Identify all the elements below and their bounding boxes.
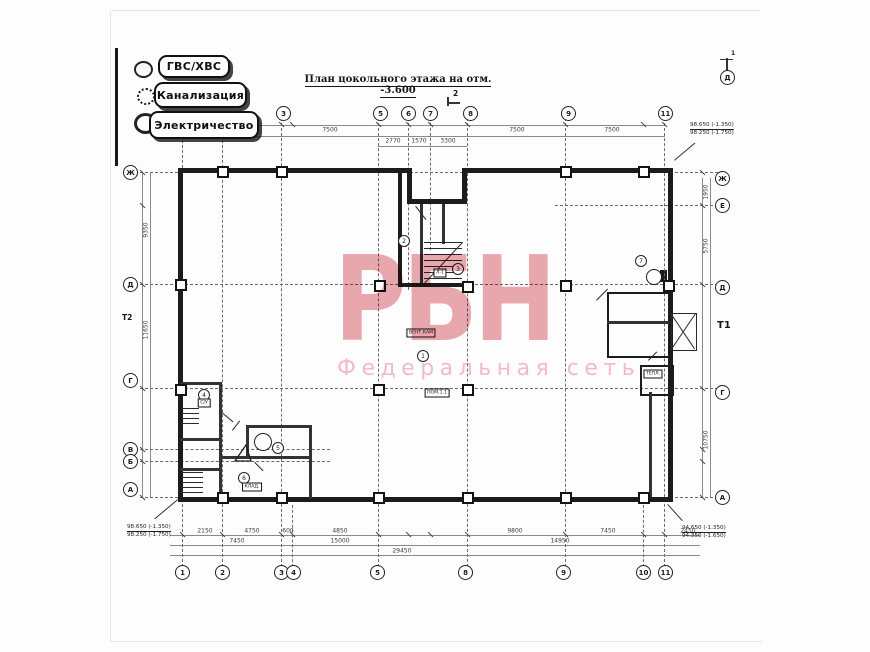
axis-label-bottom: 9: [556, 565, 571, 580]
room-tag: С/У: [198, 399, 211, 408]
axis-label-bottom: 2: [215, 565, 230, 580]
column-marker: [560, 166, 572, 178]
legend-dot-sewer: [137, 88, 155, 105]
legend-button-electricity[interactable]: Электричество: [149, 111, 259, 139]
column-marker: [276, 492, 288, 504]
dimension-label: 14950: [550, 538, 569, 545]
dimension-label: 5750: [703, 238, 710, 253]
room-right-divider: [607, 321, 669, 324]
column-marker: [276, 166, 288, 178]
axis-label-bottom: 5: [370, 565, 385, 580]
dimension-label: 15000: [330, 538, 349, 545]
stair-tread-small: [181, 418, 199, 419]
section-mark-left: Т2: [122, 313, 132, 322]
shaft-circle: [646, 269, 662, 285]
room-tag: КЛАД.: [242, 483, 262, 492]
room-right-block: [607, 292, 673, 358]
section-mark-ne-num: 1: [731, 50, 735, 57]
axis-label-right: Ж: [715, 171, 730, 186]
column-marker: [175, 384, 187, 396]
wall-bl-mid1: [180, 438, 222, 441]
room-number-marker: 3: [452, 263, 464, 275]
elevation-bottom-left: 98.650 (-1.350) 98.250 (-1.750): [127, 524, 171, 538]
column-marker: [374, 280, 386, 292]
column-marker: [175, 279, 187, 291]
legend-dot-gvs: [134, 61, 153, 78]
legend-button-sewerage[interactable]: Канализация: [154, 82, 247, 108]
grid-line-vertical: [430, 108, 431, 250]
axis-label-left: Г: [123, 373, 138, 388]
room-number-marker: 7: [635, 255, 647, 267]
axis-label-top: 8: [463, 106, 478, 121]
wall-bottom: [178, 497, 673, 502]
stair-tread-corner: [181, 492, 203, 493]
stair-tread: [424, 242, 462, 243]
grid-line-vertical: [222, 120, 223, 572]
axis-label-top: 9: [561, 106, 576, 121]
dimension-label: 7450: [229, 538, 244, 545]
stair-tread-corner: [181, 472, 203, 473]
wall-wash-east: [309, 425, 312, 499]
dimension-label: 1570: [411, 138, 426, 145]
axis-label-top: 7: [423, 106, 438, 121]
wall-notch-right: [462, 168, 467, 204]
wall-top-left: [178, 168, 412, 173]
column-marker: [217, 166, 229, 178]
column-marker: [373, 384, 385, 396]
dim-line-top-3: [378, 146, 467, 147]
room-number-marker: 5: [272, 442, 284, 454]
dimension-label: 3300: [440, 138, 455, 145]
stair-tread-small: [181, 423, 199, 424]
axis-label-right: Г: [715, 385, 730, 400]
column-marker: [638, 492, 650, 504]
axis-label-bottom: 1: [175, 565, 190, 580]
dimension-label: 7500: [322, 127, 337, 134]
dimension-label: 2150: [197, 528, 212, 535]
axis-label-left: А: [123, 482, 138, 497]
scanned-floor-plan-page: ГВС/ХВС Канализация Электричество План ц…: [0, 0, 870, 652]
dimension-label: 4850: [332, 528, 347, 535]
dimension-label: 2770: [385, 138, 400, 145]
wall-notch-bottom: [407, 199, 467, 204]
axis-label-left: Д: [123, 277, 138, 292]
dimension-label: 10750: [703, 430, 710, 449]
wall-wash-top: [246, 425, 312, 428]
dimension-label: 7500: [604, 127, 619, 134]
axis-label-bottom: 8: [458, 565, 473, 580]
column-marker: [663, 280, 675, 292]
room-tag: Л-1: [433, 269, 446, 278]
column-marker: [560, 280, 572, 292]
section-mark-ne-tick: [720, 59, 733, 60]
elevation-bottom-right: 94.650 (-1.350) 94.350 (-1.650): [682, 525, 726, 539]
legend-label-gvs-hvs: ГВС/ХВС: [167, 60, 222, 73]
drawing-title: План цокольного этажа на отм. -3.600: [288, 74, 508, 96]
column-marker: [373, 492, 385, 504]
axis-label-left: Б: [123, 454, 138, 469]
washbasin: [254, 433, 272, 451]
column-marker: [462, 492, 474, 504]
dimension-label: 9350: [143, 222, 150, 237]
wall-right-corridor: [649, 392, 652, 497]
column-marker: [217, 492, 229, 504]
dimension-label: 4750: [244, 528, 259, 535]
legend-button-gvs-hvs[interactable]: ГВС/ХВС: [158, 55, 230, 78]
room-tag: ТЕПЛ.: [643, 370, 662, 379]
section-mark-top-bar-h: [447, 102, 460, 104]
dim-line-bottom-2: [170, 545, 700, 546]
axis-label-right: Д: [715, 280, 730, 295]
stair-tread-small: [181, 408, 199, 409]
axis-label-bottom: 4: [286, 565, 301, 580]
wall-stair-inner-mid: [442, 204, 445, 244]
axis-label-bottom: 11: [658, 565, 673, 580]
axis-label-top: 5: [373, 106, 388, 121]
column-marker: [462, 281, 474, 293]
axis-label-bottom: 10: [636, 565, 651, 580]
grid-line-horizontal: [555, 205, 718, 206]
dimension-label: 29450: [392, 548, 411, 555]
dim-line-bottom-3: [170, 555, 700, 556]
grid-line-vertical: [292, 505, 293, 572]
dimension-label: 600: [282, 528, 293, 535]
axis-label-ne: Д: [720, 70, 735, 85]
legend-label-sewerage: Канализация: [157, 89, 244, 102]
stair-tread-corner: [181, 477, 203, 478]
stair-tread: [424, 254, 462, 255]
dim-line-bottom-1: [170, 535, 700, 536]
stair-tread-corner: [181, 487, 203, 488]
axis-label-top: 11: [658, 106, 673, 121]
shower-tray: [234, 444, 252, 462]
wall-stair-south: [398, 283, 470, 287]
stair-tread-small: [181, 413, 199, 414]
axis-label-top: 6: [401, 106, 416, 121]
legend-label-electricity: Электричество: [154, 119, 253, 132]
room-number-marker: 2: [398, 235, 410, 247]
elevation-top-right: 98.650 (-1.350) 98.250 (-1.750): [690, 122, 734, 136]
column-marker: [638, 166, 650, 178]
section-mark-right: Т1: [717, 320, 731, 331]
wall-left: [178, 168, 183, 502]
axis-label-left: Ж: [123, 165, 138, 180]
room-tag: ВЕНТ.КАМ: [406, 329, 435, 338]
dimension-label: 7500: [509, 127, 524, 134]
dimension-label: 11650: [143, 320, 150, 339]
grid-line-vertical: [643, 505, 644, 572]
dimension-label: 1950: [703, 184, 710, 199]
dim-line-right-2: [710, 178, 711, 497]
column-marker: [462, 384, 474, 396]
dimension-label: 7450: [600, 528, 615, 535]
wall-stair-west: [398, 173, 402, 285]
axis-label-right: Е: [715, 198, 730, 213]
axis-label-right: А: [715, 490, 730, 505]
column-marker: [560, 492, 572, 504]
axis-label-top: 3: [276, 106, 291, 121]
room-number-marker: 1: [417, 350, 429, 362]
dimension-label: 9800: [507, 528, 522, 535]
stair-tread-corner: [181, 482, 203, 483]
room-tag: ПОМ.1.1: [425, 389, 450, 398]
wall-bl-mid2: [180, 468, 222, 471]
section-mark-top-label: 2: [453, 89, 458, 98]
